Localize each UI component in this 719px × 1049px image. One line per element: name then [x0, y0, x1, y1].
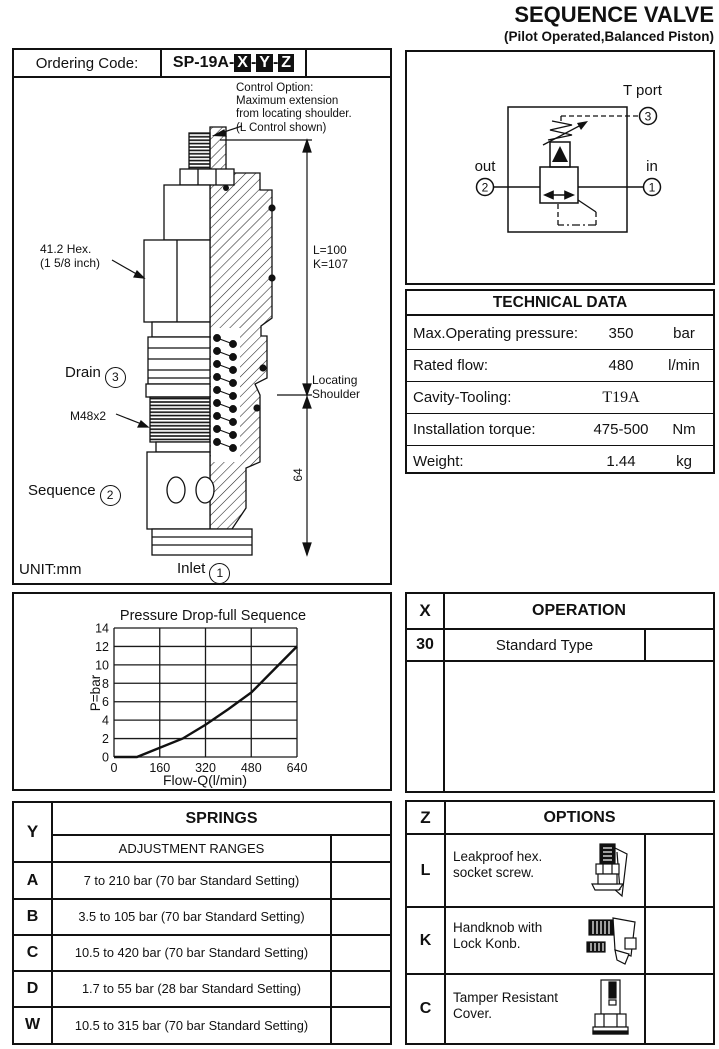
- x-tick-label: 160: [149, 761, 170, 775]
- technical-data-title: TECHNICAL DATA: [407, 291, 713, 316]
- x-tick-label: 480: [241, 761, 262, 775]
- inlet-port-label: Inlet1: [177, 560, 230, 584]
- y-tick-label: 0: [102, 751, 109, 765]
- tech-value: T19A: [587, 389, 655, 407]
- operation-code: 30: [407, 630, 443, 660]
- spring-range: 10.5 to 315 bar (70 bar Standard Setting…: [53, 1007, 330, 1043]
- ordering-code-z: Z: [278, 54, 294, 72]
- length-dims: L=100 K=107: [313, 244, 348, 272]
- tech-unit: bar: [655, 325, 713, 342]
- hex-size-note: 41.2 Hex. (1 5/8 inch): [40, 243, 100, 271]
- option-label: Leakproof hex. socket screw.: [453, 849, 581, 881]
- drain-port-label: Drain3: [65, 364, 126, 388]
- tech-unit: kg: [655, 453, 713, 470]
- spring-code: B: [14, 899, 51, 934]
- divider: [330, 834, 332, 1043]
- operation-col-header: X: [407, 594, 443, 628]
- technical-data-panel: TECHNICAL DATA Max.Operating pressure: 3…: [405, 289, 715, 474]
- ordering-code-empty-cell: [307, 50, 390, 76]
- page-title: SEQUENCE VALVE: [514, 2, 714, 28]
- options-title: OPTIONS: [446, 802, 713, 833]
- table-row: Installation torque: 475-500 Nm: [407, 414, 713, 446]
- hex-socket-screw-icon: [587, 840, 635, 907]
- operation-title: OPERATION: [445, 594, 713, 628]
- control-option-note: Control Option: Maximum extension from l…: [236, 82, 390, 135]
- options-panel: Z OPTIONS L Leakproof hex. socket screw.: [405, 800, 715, 1045]
- option-code: K: [407, 908, 444, 973]
- spring-range: 7 to 210 bar (70 bar Standard Setting): [53, 863, 330, 898]
- tech-label: Cavity-Tooling:: [407, 389, 587, 406]
- springs-col-header: Y: [14, 803, 51, 861]
- springs-panel: Y SPRINGS ADJUSTMENT RANGES A 7 to 210 b…: [12, 801, 392, 1045]
- technical-data-rows: Max.Operating pressure: 350 bar Rated fl…: [407, 318, 713, 477]
- port-2-number: 2: [482, 181, 489, 195]
- ordering-code-y: Y: [256, 54, 273, 72]
- y-tick-label: 12: [95, 640, 109, 654]
- y-tick-label: 4: [102, 714, 109, 728]
- tech-value: 480: [587, 357, 655, 374]
- page-subtitle: (Pilot Operated,Balanced Piston): [504, 29, 714, 44]
- valve-section-drawing: Control Option: Maximum extension from l…: [14, 78, 390, 583]
- sequence-port-label: Sequence2: [28, 482, 121, 506]
- divider: [407, 973, 713, 975]
- option-label: Handknob with Lock Konb.: [453, 920, 581, 952]
- spring-code: D: [14, 971, 51, 1006]
- spring-range: 10.5 to 420 bar (70 bar Standard Setting…: [53, 935, 330, 970]
- hydraulic-schematic-panel: 2 1 3 T port out in: [405, 50, 715, 285]
- spring-code: C: [14, 935, 51, 970]
- tech-label: Installation torque:: [407, 421, 587, 438]
- y-tick-label: 10: [95, 658, 109, 672]
- valve-cross-section-diagram: [14, 78, 390, 583]
- dim-64-label: 64: [292, 468, 306, 481]
- pressure-drop-chart: Pressure Drop-full Sequence P=bar Flow-Q…: [14, 594, 390, 789]
- operation-label: Standard Type: [445, 630, 644, 660]
- options-col-header: Z: [407, 802, 444, 833]
- spool-arrow: [545, 192, 573, 199]
- thread-size-label: M48x2: [70, 410, 106, 424]
- divider: [407, 660, 713, 662]
- tech-value: 350: [587, 325, 655, 342]
- drain-text: Drain: [65, 364, 101, 381]
- divider: [444, 802, 446, 1043]
- table-row: Weight: 1.44 kg: [407, 446, 713, 477]
- out-label: out: [475, 158, 497, 175]
- tech-label: Max.Operating pressure:: [407, 325, 587, 342]
- poppet-triangle: [552, 146, 568, 162]
- main-spool-box: [540, 167, 578, 203]
- divider: [644, 833, 646, 1043]
- in-label: in: [646, 158, 658, 175]
- divider: [407, 833, 713, 835]
- divider: [407, 906, 713, 908]
- y-tick-label: 14: [95, 622, 109, 636]
- sequence-text: Sequence: [28, 482, 96, 499]
- ordering-code-value: SP-19A-X-Y-Z: [162, 50, 307, 76]
- tech-label: Rated flow:: [407, 357, 587, 374]
- hydraulic-schematic-diagram: 2 1 3 T port out in: [407, 52, 713, 283]
- table-row: Cavity-Tooling: T19A: [407, 382, 713, 414]
- ordering-code-row: Ordering Code: SP-19A-X-Y-Z: [14, 50, 390, 78]
- ordering-drawing-panel: Ordering Code: SP-19A-X-Y-Z: [12, 48, 392, 585]
- y-tick-label: 6: [102, 695, 109, 709]
- port-2-badge: 2: [100, 485, 121, 506]
- tech-value: 475-500: [587, 421, 655, 438]
- table-row: Max.Operating pressure: 350 bar: [407, 318, 713, 350]
- chart-title: Pressure Drop-full Sequence: [120, 608, 306, 624]
- ordering-code-prefix: SP-19A-: [173, 54, 234, 72]
- datasheet-page: SEQUENCE VALVE (Pilot Operated,Balanced …: [0, 0, 719, 1049]
- spring-range: 1.7 to 55 bar (28 bar Standard Setting): [53, 971, 330, 1006]
- pressure-drop-chart-panel: Pressure Drop-full Sequence P=bar Flow-Q…: [12, 592, 392, 791]
- springs-title: SPRINGS: [53, 803, 390, 834]
- x-tick-label: 0: [111, 761, 118, 775]
- x-tick-label: 320: [195, 761, 216, 775]
- spring-range: 3.5 to 105 bar (70 bar Standard Setting): [53, 899, 330, 934]
- ordering-code-label: Ordering Code:: [14, 50, 162, 76]
- chart-ylabel: P=bar: [88, 674, 103, 711]
- tech-unit: Nm: [655, 421, 713, 438]
- locating-shoulder-note: Locating Shoulder: [312, 374, 360, 402]
- spring-code: A: [14, 863, 51, 898]
- port-1-number: 1: [649, 181, 656, 195]
- ordering-code-x: X: [234, 54, 251, 72]
- operation-panel: X OPERATION 30 Standard Type: [405, 592, 715, 793]
- table-row: Rated flow: 480 l/min: [407, 350, 713, 382]
- y-tick-label: 2: [102, 732, 109, 746]
- tech-label: Weight:: [407, 453, 587, 470]
- inlet-text: Inlet: [177, 560, 205, 577]
- port-3-badge: 3: [105, 367, 126, 388]
- handknob-icon: [583, 912, 639, 973]
- springs-subtitle: ADJUSTMENT RANGES: [53, 835, 330, 861]
- tech-value: 1.44: [587, 453, 655, 470]
- tamper-cover-icon: [589, 978, 633, 1045]
- y-tick-label: 8: [102, 677, 109, 691]
- port-1-badge: 1: [209, 563, 230, 584]
- tech-unit: l/min: [655, 357, 713, 374]
- x-tick-label: 640: [287, 761, 308, 775]
- divider: [644, 628, 646, 660]
- port-3-number: 3: [645, 110, 652, 124]
- spring-code: W: [14, 1007, 51, 1043]
- option-code: L: [407, 835, 444, 906]
- unit-label: UNIT:mm: [19, 561, 82, 578]
- t-port-label: T port: [623, 82, 663, 99]
- option-code: C: [407, 975, 444, 1043]
- option-label: Tamper Resistant Cover.: [453, 990, 581, 1022]
- spring-symbol: [548, 121, 572, 140]
